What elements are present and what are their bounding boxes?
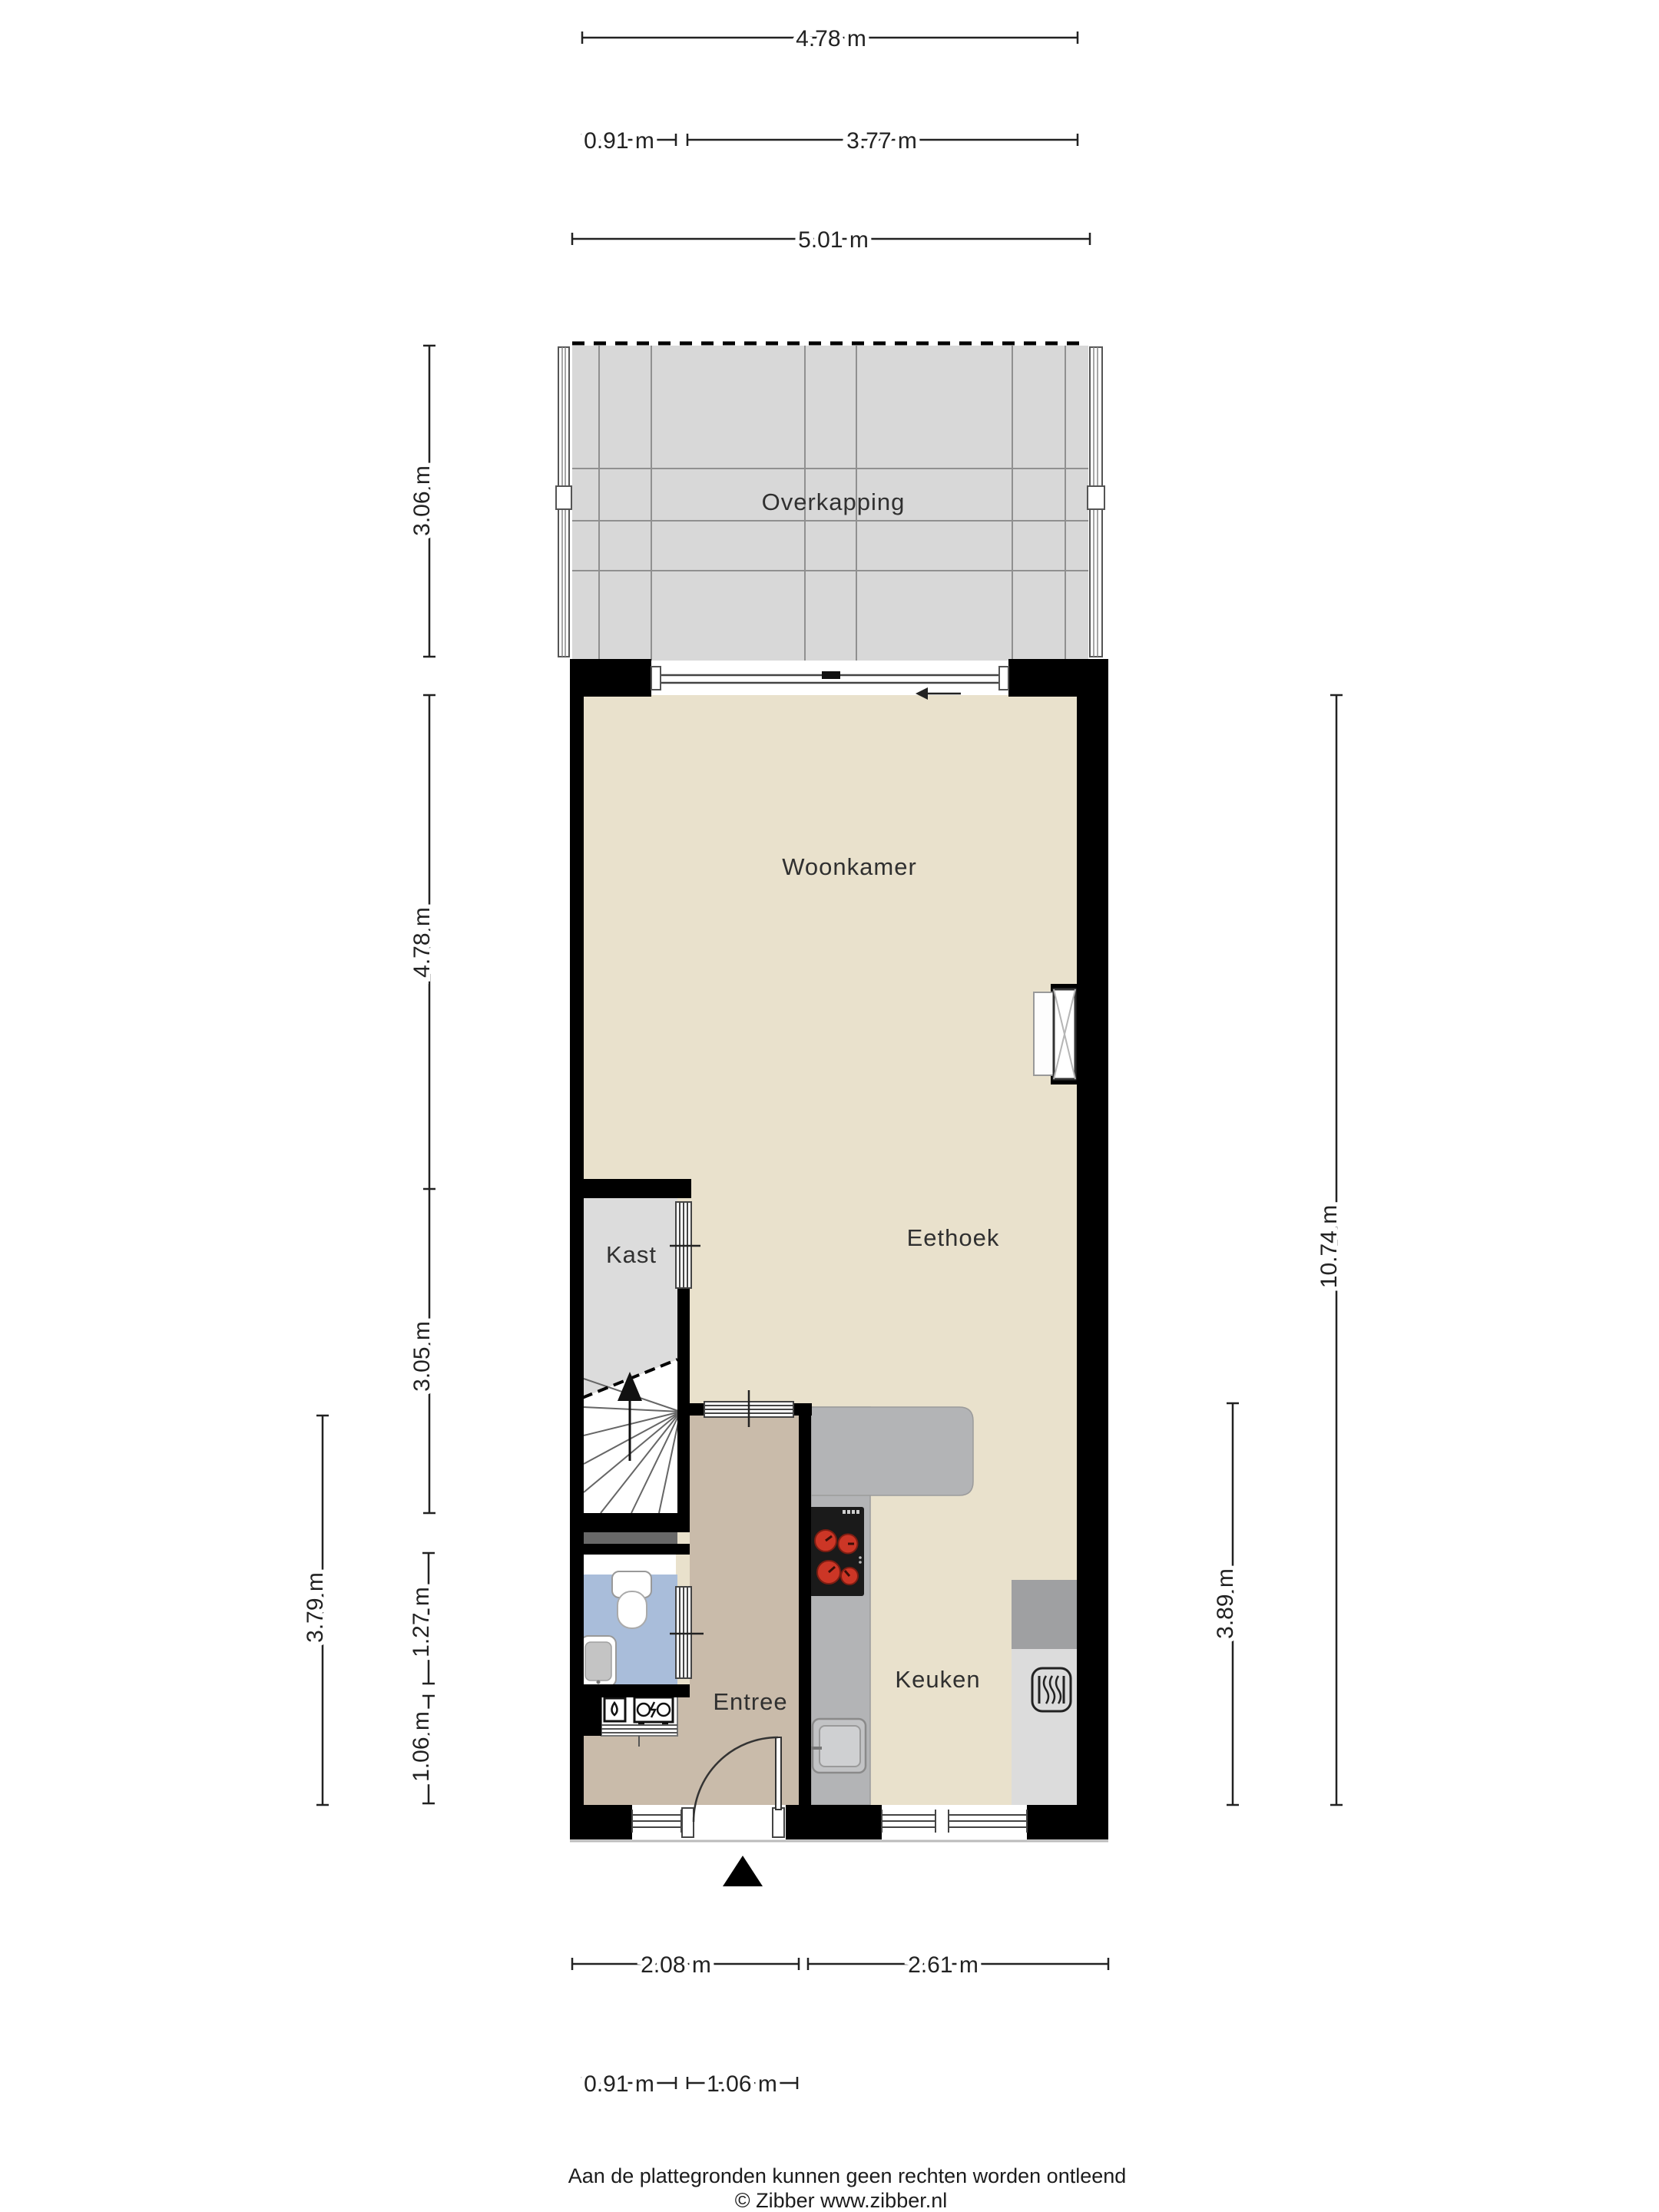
floorplan-page: 4.78 m 0.91 m 3.77 m 5.01 m 3.06 m 4.78 … <box>0 0 1659 2212</box>
wall-right <box>1077 659 1108 1839</box>
dim-label: 2.08 m <box>641 1952 711 1978</box>
dim-top-377: 3.77 m <box>687 128 1078 154</box>
dim-label: 4.78 m <box>409 907 435 978</box>
room-label-overkapping: Overkapping <box>762 488 906 515</box>
dim-left-478: 4.78 m <box>409 695 435 1189</box>
radiator-icon <box>1034 984 1108 1084</box>
dim-label: 0.91 m <box>584 128 654 154</box>
wall-eethoek-entree-left <box>687 1403 704 1416</box>
wall-toilet-bottom <box>570 1684 690 1697</box>
dim-label: 4.78 m <box>796 26 866 51</box>
overkapping-post-left <box>556 347 571 657</box>
dim-left-127: 1.27 m <box>409 1553 435 1684</box>
appliance-light-block <box>1012 1649 1077 1805</box>
dim-bottom-261: 2.61 m <box>808 1952 1108 1978</box>
room-label-eethoek: Eethoek <box>907 1224 1000 1251</box>
north-arrow-icon <box>723 1856 763 1886</box>
dim-bottom-208: 2.08 m <box>572 1952 799 1978</box>
dim-label: 3.89 m <box>1213 1568 1238 1639</box>
dim-label: 1.06 m <box>707 2071 777 2097</box>
dim-label: 2.61 m <box>908 1952 979 1978</box>
dim-label: 1.27 m <box>409 1587 434 1657</box>
dim-label: 5.01 m <box>798 227 869 253</box>
dim-right-1074: 10.74 m <box>1316 695 1343 1805</box>
kitchen-appliance-block <box>1012 1580 1077 1805</box>
wall-left <box>570 659 584 1839</box>
dim-bottom-091: 0.91 m <box>582 2071 676 2097</box>
wall-stairs-bottom <box>570 1513 690 1532</box>
bottom-window-left <box>632 1805 681 1839</box>
dim-right-389: 3.89 m <box>1213 1403 1239 1805</box>
dim-label: 3.79 m <box>303 1572 328 1643</box>
footer-copyright: © Zibber www.zibber.nl <box>735 2189 948 2212</box>
wall-kast-right <box>677 1286 690 1513</box>
bottom-window-right <box>882 1805 1027 1839</box>
footer-disclaimer: Aan de plattegronden kunnen geen rechten… <box>568 2164 1127 2187</box>
appliance-dark-block <box>1012 1580 1077 1649</box>
footer: Aan de plattegronden kunnen geen rechten… <box>568 2164 1127 2212</box>
dim-left-306: 3.06 m <box>409 346 435 657</box>
room-label-entree: Entree <box>713 1688 787 1715</box>
stairs <box>582 1359 680 1513</box>
dim-label: 1.06 m <box>409 1711 434 1782</box>
dim-left-379: 3.79 m <box>303 1416 329 1805</box>
toilet-shelf <box>584 1531 677 1544</box>
dim-label: 10.74 m <box>1316 1205 1342 1288</box>
dim-top-478: 4.78 m <box>582 26 1078 51</box>
stove-icon <box>809 1507 864 1596</box>
sliding-door <box>651 662 1008 700</box>
dim-left-106: 1.06 m <box>409 1696 435 1803</box>
wall-meter-cabinet-left <box>582 1697 601 1736</box>
dim-left-305: 3.05 m <box>409 1189 435 1513</box>
dim-label: 3.77 m <box>846 128 917 154</box>
toilet-icon <box>612 1571 651 1628</box>
dim-label: 3.06 m <box>409 465 435 536</box>
dim-label: 3.05 m <box>409 1321 435 1392</box>
sink-icon <box>804 1719 866 1773</box>
room-label-kast: Kast <box>606 1241 657 1268</box>
wall-toilet-top <box>570 1544 690 1555</box>
overkapping-post-right <box>1088 347 1104 657</box>
water-meter-icon <box>604 1698 625 1721</box>
wall-entree-keuken <box>799 1416 811 1805</box>
room-label-woonkamer: Woonkamer <box>782 853 917 880</box>
wall-top-left <box>570 659 651 697</box>
room-label-keuken: Keuken <box>895 1666 980 1693</box>
dim-label: 0.91 m <box>584 2071 654 2097</box>
sliding-door-handle <box>822 671 840 679</box>
wall-kast-top <box>582 1179 691 1198</box>
floorplan-canvas: 4.78 m 0.91 m 3.77 m 5.01 m 3.06 m 4.78 … <box>0 0 1659 2212</box>
electricity-meter-icon <box>634 1697 673 1725</box>
kitchen-counter-arm <box>811 1407 973 1495</box>
washbasin-icon <box>581 1636 616 1687</box>
front-door-leaf <box>776 1737 781 1810</box>
dim-top-501: 5.01 m <box>572 227 1090 253</box>
dim-bottom-106: 1.06 m <box>687 2071 797 2097</box>
dim-top-091: 0.91 m <box>582 128 676 154</box>
wall-eethoek-entree-right <box>793 1403 812 1416</box>
